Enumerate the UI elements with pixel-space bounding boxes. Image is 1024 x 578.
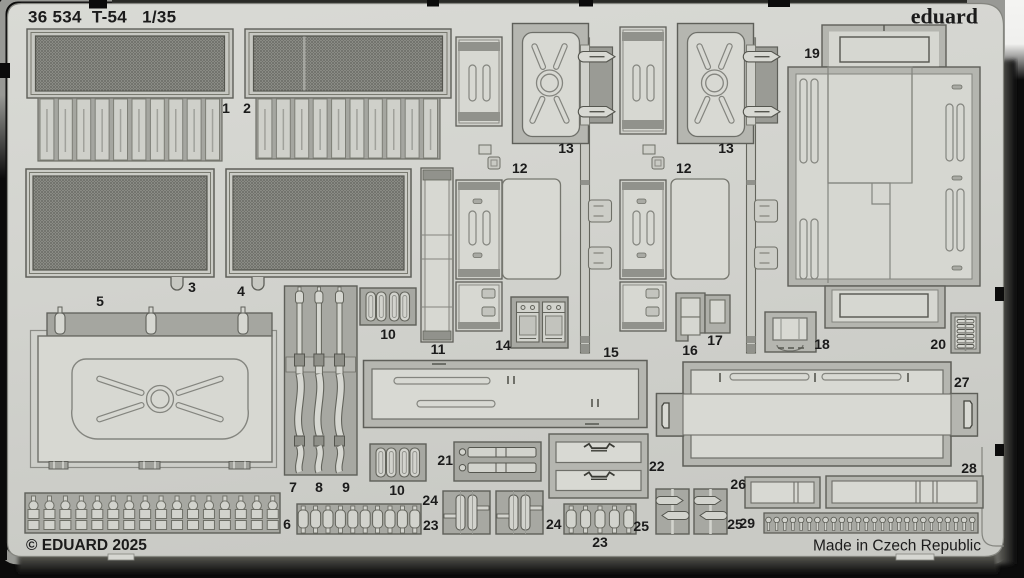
svg-text:20: 20: [930, 336, 946, 352]
svg-text:23: 23: [592, 534, 608, 550]
svg-text:13: 13: [718, 140, 734, 156]
svg-text:3: 3: [188, 279, 196, 295]
svg-text:25: 25: [633, 518, 649, 534]
svg-text:16: 16: [682, 342, 698, 358]
svg-text:26: 26: [730, 476, 746, 492]
svg-text:9: 9: [342, 479, 350, 495]
svg-text:28: 28: [961, 460, 977, 476]
svg-text:21: 21: [437, 452, 453, 468]
svg-text:14: 14: [495, 337, 511, 353]
svg-text:15: 15: [603, 344, 619, 360]
svg-text:23: 23: [423, 517, 439, 533]
svg-text:13: 13: [558, 140, 574, 156]
svg-text:Made in Czech Republic: Made in Czech Republic: [813, 538, 981, 555]
svg-text:22: 22: [649, 458, 665, 474]
svg-text:19: 19: [804, 45, 820, 61]
svg-text:© EDUARD 2025: © EDUARD 2025: [26, 537, 147, 554]
svg-text:29: 29: [739, 515, 755, 531]
svg-text:24: 24: [546, 516, 562, 532]
svg-text:27: 27: [954, 374, 970, 390]
svg-text:24: 24: [422, 492, 438, 508]
svg-text:18: 18: [814, 336, 830, 352]
svg-text:12: 12: [512, 160, 528, 176]
svg-text:17: 17: [707, 332, 723, 348]
svg-text:10: 10: [380, 326, 396, 342]
svg-text:5: 5: [96, 293, 104, 309]
svg-text:6: 6: [283, 516, 291, 532]
svg-text:10: 10: [389, 482, 405, 498]
svg-text:8: 8: [315, 479, 323, 495]
svg-text:36 534 T-54 1/35: 36 534 T-54 1/35: [28, 8, 176, 27]
svg-text:1: 1: [222, 100, 230, 116]
svg-text:12: 12: [676, 160, 692, 176]
svg-text:4: 4: [237, 283, 245, 299]
svg-text:2: 2: [243, 100, 251, 116]
svg-text:11: 11: [431, 341, 446, 357]
svg-text:7: 7: [289, 479, 297, 495]
